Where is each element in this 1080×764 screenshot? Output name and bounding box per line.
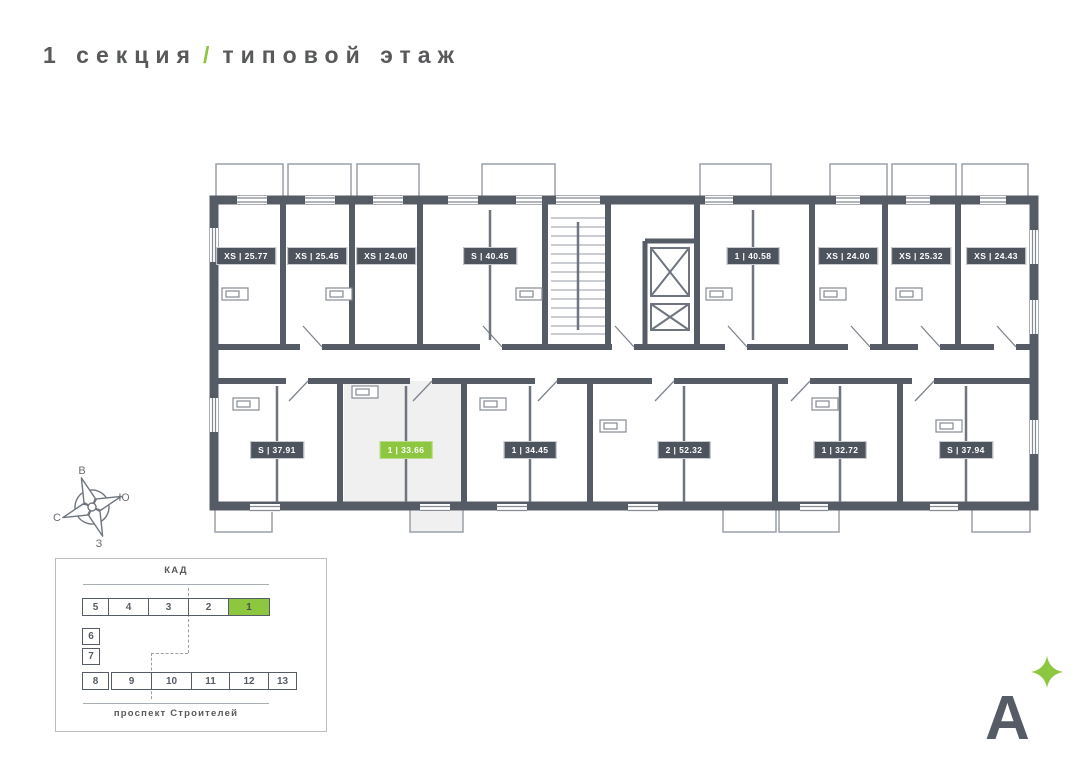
balcony	[216, 164, 1028, 198]
minimap-section-4[interactable]: 4	[108, 598, 149, 616]
compass-label-west: З	[96, 538, 103, 550]
compass-label-south: Ю	[118, 492, 129, 504]
apartment-badge[interactable]: XS | 24.00	[356, 247, 416, 265]
apartment-badge[interactable]: XS | 24.43	[966, 247, 1026, 265]
apartment-badge-selected[interactable]: 1 | 33.66	[380, 441, 433, 459]
site-boundary-dash	[151, 653, 188, 654]
apartment-badge[interactable]: S | 37.91	[250, 441, 304, 459]
apartment-badge[interactable]: S | 37.94	[939, 441, 993, 459]
site-minimap: КАД 5 4 3 2 1 6 7 8 9 10 11 12 13 проспе…	[55, 558, 327, 732]
minimap-section-12[interactable]: 12	[229, 672, 269, 690]
apartment-badge[interactable]: 1 | 34.45	[504, 441, 557, 459]
minimap-section-13[interactable]: 13	[268, 672, 297, 690]
compass-label-north: С	[53, 512, 61, 524]
sparkle-icon	[1027, 652, 1067, 692]
apartment-badge[interactable]: S | 40.45	[463, 247, 517, 265]
minimap-section-5[interactable]: 5	[82, 598, 109, 616]
logo-letter: А	[985, 688, 1030, 750]
apartment-badge[interactable]: XS | 24.00	[818, 247, 878, 265]
minimap-section-3[interactable]: 3	[148, 598, 189, 616]
minimap-section-11[interactable]: 11	[191, 672, 230, 690]
interior-walls-top	[283, 204, 958, 344]
brand-logo: А	[975, 648, 1070, 748]
compass-icon: В Ю С З	[40, 455, 150, 560]
apartment-badge[interactable]: XS | 25.77	[216, 247, 276, 265]
apartment-badge[interactable]: XS | 25.32	[891, 247, 951, 265]
road-line	[83, 703, 269, 704]
stairs-icon	[551, 218, 605, 334]
minimap-section-1-selected[interactable]: 1	[228, 598, 270, 616]
apartment-badge[interactable]: 1 | 40.58	[727, 247, 780, 265]
road-label-kad: КАД	[83, 565, 269, 576]
minimap-section-7[interactable]: 7	[82, 648, 100, 665]
road-label-prospekt: проспект Строителей	[83, 708, 269, 719]
minimap-section-8[interactable]: 8	[82, 672, 109, 690]
elevator-icon	[651, 248, 689, 330]
compass-label-east: В	[78, 465, 85, 477]
apartment-badge[interactable]: 1 | 32.72	[814, 441, 867, 459]
road-line	[83, 584, 269, 585]
minimap-section-9[interactable]: 9	[111, 672, 152, 690]
minimap-section-6[interactable]: 6	[82, 628, 100, 645]
minimap-section-2[interactable]: 2	[188, 598, 229, 616]
apartment-badge[interactable]: XS | 25.45	[287, 247, 347, 265]
minimap-section-10[interactable]: 10	[151, 672, 192, 690]
corridor-walls	[214, 347, 1034, 381]
apartment-badge[interactable]: 2 | 52.32	[658, 441, 711, 459]
